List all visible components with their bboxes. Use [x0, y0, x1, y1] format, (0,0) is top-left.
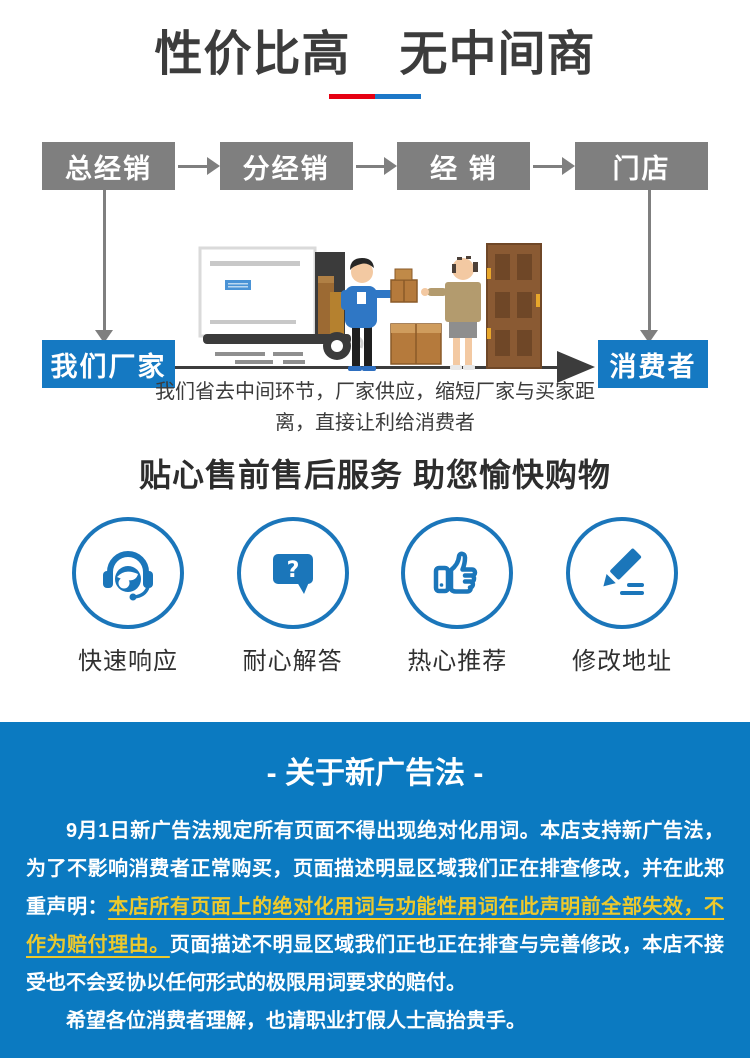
distribution-chain-row: 总经销 分经销 经 销 门店	[42, 142, 708, 190]
service-item-fast-response: 快速响应	[66, 517, 190, 677]
service-label: 快速响应	[66, 647, 190, 677]
edit-pencil-icon	[590, 541, 654, 605]
services-section: 贴心售前售后服务 助您愉快购物 快速响应	[0, 443, 750, 677]
question-bubble-icon: ?	[261, 541, 325, 605]
notice-section: - 关于新广告法 - 9月1日新广告法规定所有页面不得出现绝对化用词。本店支持新…	[0, 722, 750, 1058]
divider-red-segment	[329, 94, 375, 99]
title-underline	[329, 94, 421, 99]
service-label: 修改地址	[560, 647, 684, 677]
notice-title: - 关于新广告法 -	[26, 748, 724, 792]
notice-body: 9月1日新广告法规定所有页面不得出现绝对化用词。本店支持新广告法，为了不影响消费…	[26, 812, 724, 1040]
service-label: 耐心解答	[231, 647, 355, 677]
service-row: 快速响应 ? 耐心解答	[0, 517, 750, 677]
headset-icon	[96, 541, 160, 605]
chain-box-store: 门店	[575, 142, 708, 190]
svg-text:?: ?	[286, 558, 299, 583]
service-item-change-address: 修改地址	[560, 517, 684, 677]
chain-box-dealer: 经 销	[397, 142, 530, 190]
right-arrow-icon	[178, 165, 217, 168]
chain-box-general-distributor: 总经销	[42, 142, 175, 190]
notice-paragraph-2: 希望各位消费者理解，也请职业打假人士高抬贵手。	[26, 1002, 724, 1040]
divider-blue-segment	[375, 94, 421, 99]
thumbs-up-icon	[425, 541, 489, 605]
distribution-diagram: 总经销 分经销 经 销 门店	[0, 113, 750, 443]
page-title: 性价比高 无中间商	[0, 26, 750, 84]
right-arrow-icon	[356, 165, 395, 168]
service-item-patient-answers: ? 耐心解答	[231, 517, 355, 677]
chain-box-sub-distributor: 分经销	[220, 142, 353, 190]
services-title: 贴心售前售后服务 助您愉快购物	[0, 453, 750, 497]
diagram-caption: 我们省去中间环节，厂家供应，缩短厂家与买家距离，直接让利给消费者	[0, 377, 750, 439]
right-arrow-icon	[533, 165, 572, 168]
promo-header: 性价比高 无中间商	[0, 0, 750, 99]
connector-line-right	[648, 190, 651, 330]
service-label: 热心推荐	[395, 647, 519, 677]
connector-line-left	[103, 190, 106, 330]
notice-paragraph-1: 9月1日新广告法规定所有页面不得出现绝对化用词。本店支持新广告法，为了不影响消费…	[26, 812, 724, 1002]
service-item-warm-recommendation: 热心推荐	[395, 517, 519, 677]
